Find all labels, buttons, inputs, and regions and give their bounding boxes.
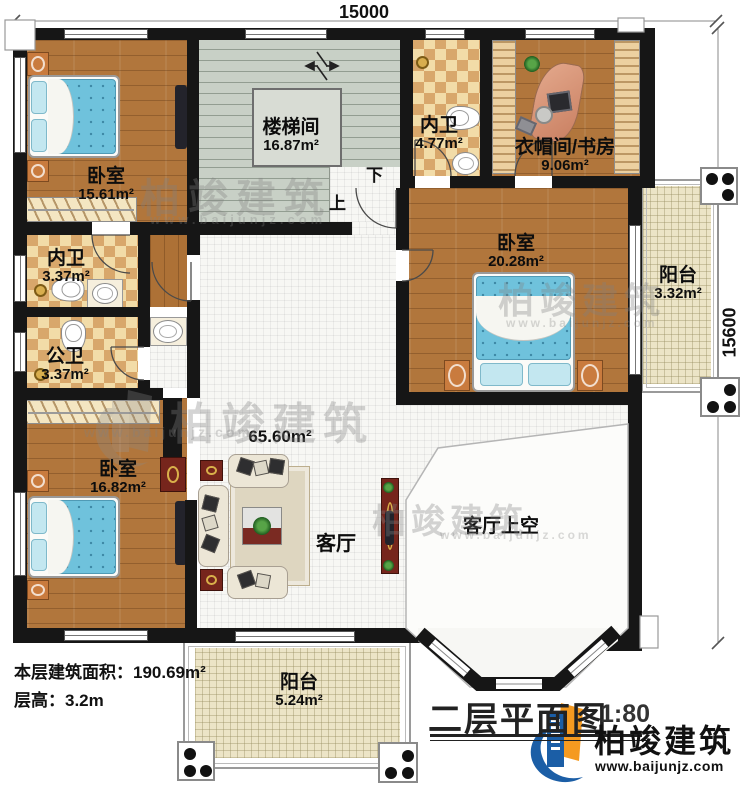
room-label-bath1: 内卫 4.77m² (389, 115, 489, 153)
plant (524, 56, 540, 72)
pillow (31, 81, 47, 114)
column-dot (385, 767, 397, 779)
window (64, 630, 148, 641)
column-dot (706, 173, 718, 185)
sofa-cushion (255, 573, 271, 589)
pillow (528, 363, 571, 386)
wall (185, 500, 197, 630)
column-dot (724, 384, 736, 396)
shower-head (416, 56, 429, 69)
wall (13, 307, 150, 317)
corridor-floor (150, 235, 187, 307)
side-table (200, 460, 223, 481)
column-dot (200, 765, 212, 777)
room-label-balcony-bottom: 阳台 5.24m² (259, 672, 339, 710)
sink (92, 283, 118, 304)
plant (383, 560, 394, 571)
vanity-hall-floor (150, 346, 187, 388)
hall-passage-floor (352, 222, 400, 235)
pillow (480, 363, 523, 386)
pillow (31, 502, 47, 534)
plant (383, 482, 394, 493)
column-dot (722, 173, 734, 185)
bedroom3-wardrobe (25, 400, 160, 424)
column-marker (700, 377, 740, 417)
living-name-label: 客厅 (301, 533, 371, 555)
wall (396, 392, 642, 405)
bay-window-line (432, 643, 467, 673)
column-dot (402, 750, 414, 762)
watermark-url: www.baijunjz.com (440, 528, 592, 542)
wall (187, 235, 200, 255)
brand-url: www.baijunjz.com (595, 758, 724, 774)
floor-height-text: 层高：3.2m (14, 686, 104, 711)
window (525, 29, 595, 39)
sofa-cushion (253, 460, 270, 477)
watermark-url: www.baijunjz.com (84, 424, 253, 440)
nightstand (444, 360, 470, 391)
balcony-door-window (235, 631, 355, 642)
desk-chair (535, 106, 553, 124)
wall (604, 628, 642, 651)
wall (400, 176, 415, 188)
wall (187, 300, 200, 398)
column-marker (700, 167, 738, 205)
wall (396, 188, 409, 250)
room-label-stairwell: 楼梯间 16.87m² (241, 117, 341, 155)
window (245, 29, 327, 39)
room-label-bedroom3: 卧室 16.82m² (58, 459, 178, 497)
watermark-url: www.baijunjz.com (506, 316, 658, 330)
nightstand (27, 470, 49, 492)
window (425, 29, 465, 39)
window (64, 29, 148, 39)
dimension-top: 15000 (334, 2, 394, 23)
wall (400, 38, 413, 188)
column-dot (184, 748, 196, 760)
wall (552, 176, 640, 188)
column-dot (402, 767, 414, 779)
room-label-bath2: 内卫 3.37m² (16, 248, 116, 286)
nightstand (27, 52, 49, 76)
room-label-study: 衣帽间/书房 9.06m² (480, 137, 650, 175)
bay-window (571, 643, 605, 673)
watermark: 柏竣建筑 (170, 388, 374, 452)
sink (153, 320, 183, 343)
window (14, 57, 26, 153)
bay-wall (420, 631, 616, 684)
column-marker (177, 741, 215, 781)
column-dot (724, 401, 736, 413)
sink (452, 152, 479, 175)
pillow (31, 119, 47, 152)
dimension-right: 15600 (720, 303, 741, 363)
wall (138, 235, 150, 317)
room-label-bedroom2: 卧室 20.28m² (456, 233, 576, 271)
window (14, 492, 26, 576)
tv-panel (175, 85, 187, 149)
sofa-cushion (268, 458, 285, 475)
brand-name: 柏竣建筑 (594, 716, 734, 762)
column-marker (378, 742, 418, 783)
nightstand (577, 360, 603, 391)
bay-window-line (571, 643, 605, 673)
nightstand (27, 580, 49, 600)
pillow (31, 539, 47, 571)
column-dot (707, 401, 719, 413)
room-label-bath3: 公卫 3.37m² (15, 346, 115, 384)
plant (253, 517, 271, 535)
wall (450, 176, 515, 188)
wall (138, 317, 150, 347)
floor-plan: 卧室 15.61m² 楼梯间 16.87m² 内卫 4.77m² 衣帽间/书房 … (0, 0, 750, 786)
bay-interior (418, 628, 618, 691)
wall (13, 222, 92, 235)
column-dot (184, 765, 196, 777)
watermark-url: www.baijunjz.com (150, 212, 326, 227)
bay-window (432, 643, 467, 673)
wall (396, 281, 409, 405)
column-dot (722, 189, 734, 201)
side-table (200, 569, 223, 591)
wall (13, 388, 163, 400)
wall (138, 380, 150, 388)
stair-down-label: 下 (366, 161, 383, 186)
floor-area-text: 本层建筑面积：190.69m² (14, 658, 206, 683)
